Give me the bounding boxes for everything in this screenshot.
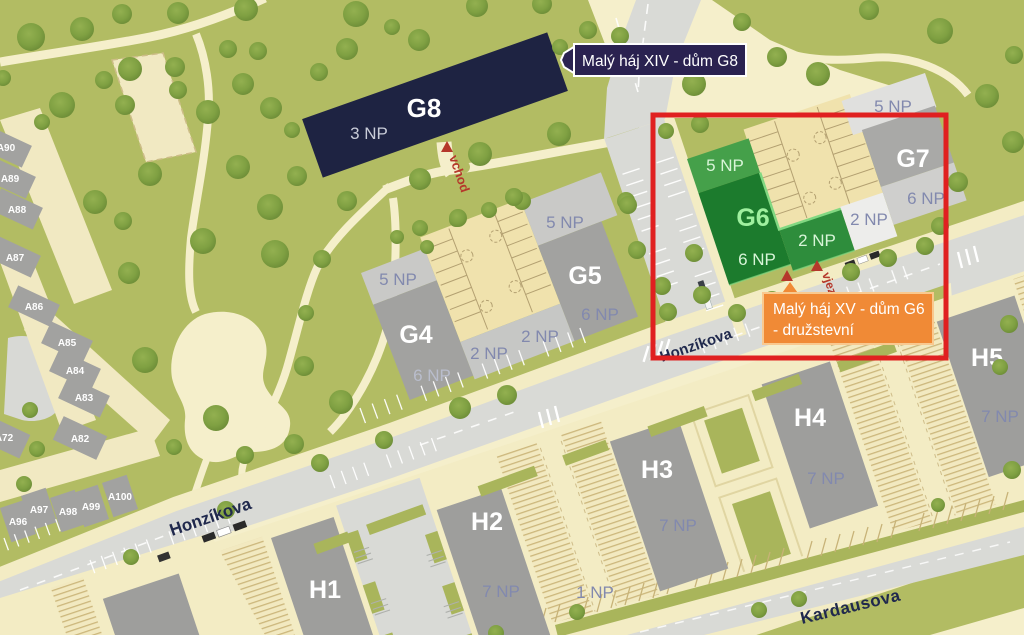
svg-text:G5: G5 [568, 262, 601, 290]
svg-text:G6: G6 [736, 204, 769, 232]
svg-text:7 NP: 7 NP [659, 516, 697, 535]
svg-text:7 NP: 7 NP [482, 582, 520, 601]
svg-text:5 NP: 5 NP [706, 156, 744, 175]
svg-text:A72: A72 [0, 433, 14, 444]
svg-text:H3: H3 [641, 456, 673, 484]
svg-text:G7: G7 [896, 145, 929, 173]
svg-text:A85: A85 [58, 338, 77, 349]
svg-text:5 NP: 5 NP [379, 270, 417, 289]
svg-text:2 NP: 2 NP [850, 210, 888, 229]
svg-text:G8: G8 [407, 93, 442, 123]
svg-text:A97: A97 [30, 505, 49, 516]
svg-text:7 NP: 7 NP [807, 469, 845, 488]
svg-text:7 NP: 7 NP [981, 407, 1019, 426]
svg-text:6 NP: 6 NP [413, 366, 451, 385]
svg-text:A90: A90 [0, 143, 16, 154]
svg-text:G4: G4 [399, 321, 432, 349]
svg-text:A82: A82 [71, 434, 90, 445]
svg-text:A98: A98 [59, 507, 78, 518]
svg-text:5 NP: 5 NP [546, 213, 584, 232]
svg-text:A96: A96 [9, 517, 28, 528]
svg-text:A86: A86 [25, 302, 44, 313]
svg-text:- družstevní: - družstevní [773, 322, 855, 339]
svg-text:Malý háj XV - dům G6: Malý háj XV - dům G6 [773, 301, 925, 318]
svg-text:A83: A83 [75, 393, 94, 404]
svg-text:6 NP: 6 NP [738, 250, 776, 269]
svg-text:H2: H2 [471, 508, 503, 536]
svg-text:H1: H1 [309, 576, 341, 604]
svg-text:Malý háj XIV - dům G8: Malý háj XIV - dům G8 [582, 53, 738, 70]
svg-text:6 NP: 6 NP [581, 305, 619, 324]
svg-text:A99: A99 [82, 502, 101, 513]
svg-text:2 NP: 2 NP [798, 231, 836, 250]
svg-text:2 NP: 2 NP [521, 327, 559, 346]
svg-text:A88: A88 [8, 205, 27, 216]
svg-text:1 NP: 1 NP [576, 583, 614, 602]
svg-text:A89: A89 [1, 174, 20, 185]
svg-text:A87: A87 [6, 253, 25, 264]
svg-text:H4: H4 [794, 404, 826, 432]
svg-text:3 NP: 3 NP [350, 124, 388, 143]
svg-text:A84: A84 [66, 366, 85, 377]
svg-text:2 NP: 2 NP [470, 344, 508, 363]
svg-text:A100: A100 [108, 492, 132, 503]
svg-text:6 NP: 6 NP [907, 189, 945, 208]
